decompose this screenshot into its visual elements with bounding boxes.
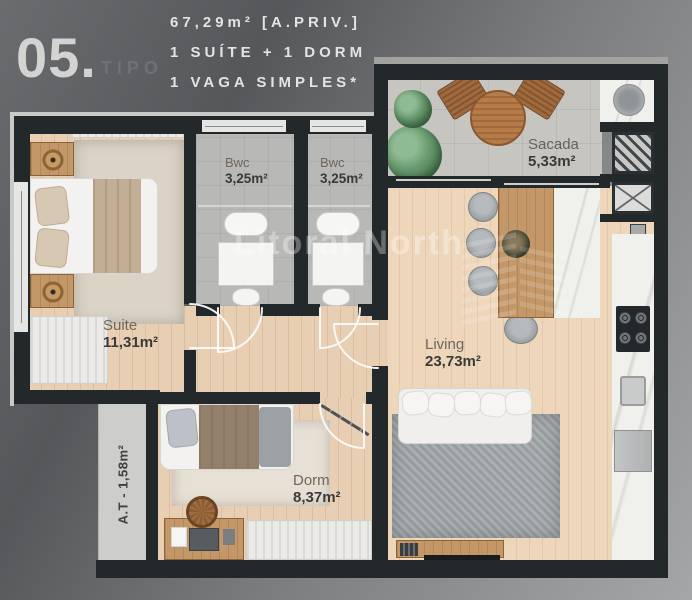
room-label-bwc1: Bwc 3,25m² <box>225 156 268 186</box>
room-label-bwc2: Bwc 3,25m² <box>320 156 363 186</box>
floor-plan-canvas: 05. TIPO 67,29m² [A.PRIV.] 1 SUÍTE + 1 D… <box>0 0 692 600</box>
room-label-suite: Suite 11,31m² <box>103 317 158 352</box>
room-label-sacada: Sacada 5,33m² <box>528 136 579 171</box>
door-arcs <box>0 0 692 600</box>
room-label-living: Living 23,73m² <box>425 336 481 371</box>
watermark-text: Litoral North <box>234 224 464 263</box>
watermark-logo-icon <box>462 226 566 322</box>
room-label-dorm: Dorm 8,37m² <box>293 472 341 507</box>
